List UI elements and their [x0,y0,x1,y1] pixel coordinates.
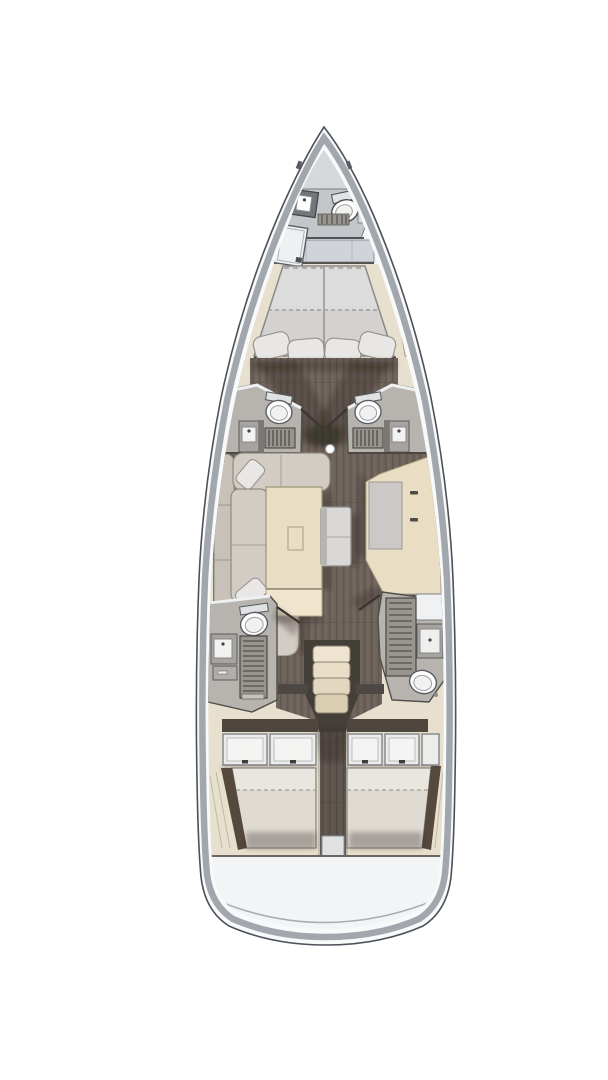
starboard-locker-panel-2 [385,734,419,765]
starboard-bed-foot-shadow [349,832,422,849]
starboard-mid-sink-basin [392,427,406,442]
starboard-mid-faucet-icon [397,429,400,432]
companionway-step-1 [313,646,350,663]
interior [190,140,460,946]
port-aft-shower-grate [240,636,267,698]
starboard-aft-shower-grate [386,598,416,676]
galley-drawer-handle-1 [410,491,418,495]
starboard-aft-cabin [347,734,448,850]
port-bed-foot-shadow [246,832,316,849]
port-aft-sink-basin [214,639,232,658]
cockpit-wall-port [278,684,308,694]
starboard-aft-flush-icon [434,693,438,697]
port-aft-drain [242,694,264,699]
port-bed-mattress-top [232,768,316,790]
companionway-step-3 [313,678,350,695]
port-mid-sink-basin [242,427,256,442]
galley-worktop [369,482,402,549]
port-locker-panel-2 [270,734,316,765]
starboard-bed-mattress-top [347,768,431,790]
aft-bulkhead-port [222,719,318,732]
starboard-aft-faucet-icon [428,638,431,641]
dining-table [266,487,322,616]
port-mid-faucet-icon [247,429,250,432]
corridor-end-step [322,836,344,856]
yacht-floorplan-drawing [0,0,608,1080]
companionway-step-2 [313,662,350,679]
mast-post [326,445,335,454]
yacht-floorplan-page [0,0,608,1080]
port-mid-divider [259,420,264,452]
port-aft-cabinet-handle [218,671,227,674]
aft-bulkhead-starboard [347,719,428,732]
cockpit-wall-starboard [356,684,384,694]
port-locker-panel-1 [223,734,267,765]
starboard-aft-counter [416,594,445,620]
port-aft-faucet-icon [221,642,224,645]
companionway-step-4 [315,694,348,713]
starboard-locker-panel-1 [348,734,382,765]
bench-seat [321,507,351,566]
galley-drawer-handle-2 [410,518,418,522]
starboard-mid-divider [384,420,389,452]
port-mid-shower-grate [265,428,295,448]
starboard-locker-panel-3 [422,734,439,765]
table-top [266,487,322,589]
starboard-mid-shower-grate [353,428,383,448]
forward-head-shower-grate [318,214,349,225]
